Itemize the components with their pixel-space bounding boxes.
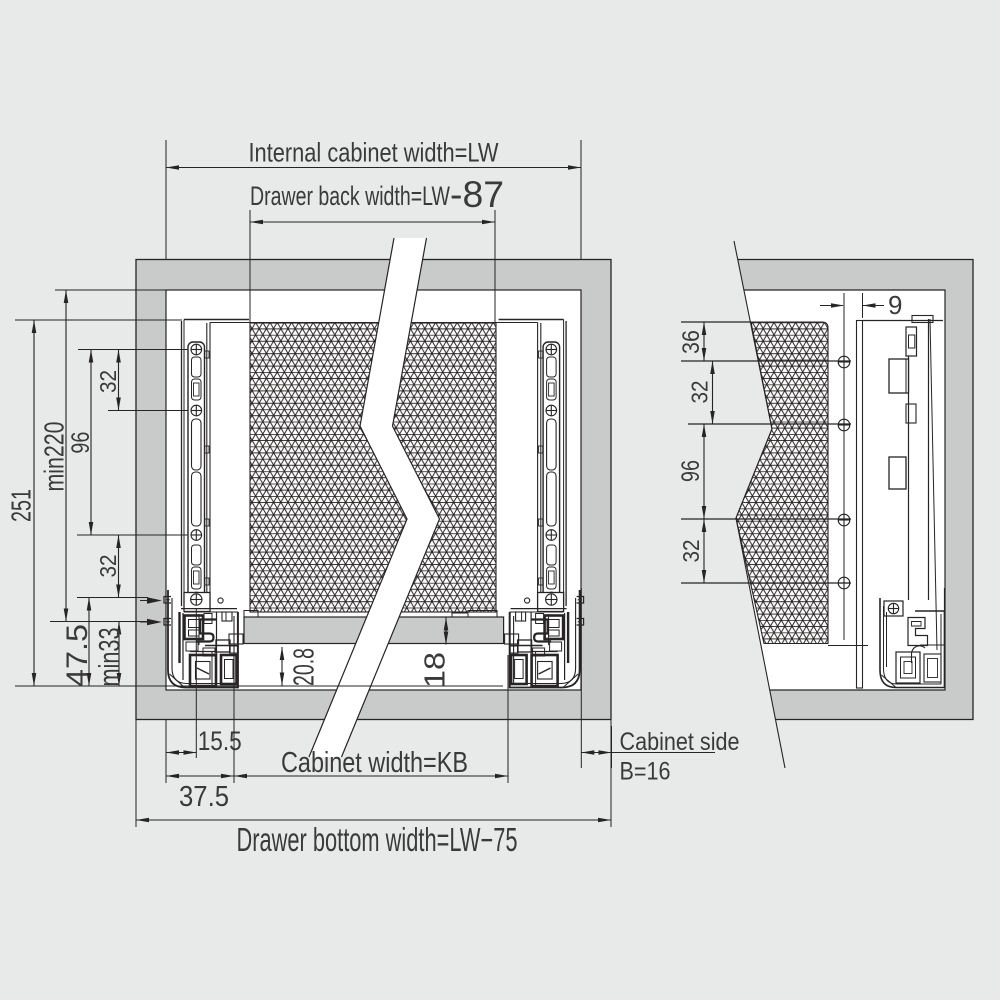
- svg-text:9: 9: [888, 290, 902, 320]
- svg-text:32: 32: [687, 381, 713, 404]
- svg-text:18: 18: [420, 652, 452, 688]
- svg-text:15.5: 15.5: [198, 726, 242, 756]
- svg-text:32: 32: [678, 540, 704, 563]
- svg-text:Internal cabinet width=LW: Internal cabinet width=LW: [249, 138, 499, 168]
- svg-text:96: 96: [67, 432, 95, 454]
- svg-text:32: 32: [95, 370, 121, 393]
- svg-text:251: 251: [6, 489, 37, 522]
- svg-text:Cabinet side: Cabinet side: [620, 728, 740, 756]
- svg-text:47.5: 47.5: [61, 624, 94, 687]
- svg-text:B=16: B=16: [620, 758, 671, 786]
- svg-text:Drawer bottom width=LW−75: Drawer bottom width=LW−75: [237, 821, 518, 858]
- svg-text:Cabinet width=KB: Cabinet width=KB: [281, 747, 468, 779]
- svg-text:min220: min220: [39, 422, 70, 492]
- svg-text:Drawer back width=LW: Drawer back width=LW: [250, 181, 450, 211]
- svg-text:32: 32: [95, 555, 121, 578]
- svg-text:20.8: 20.8: [289, 648, 321, 686]
- svg-text:-87: -87: [450, 174, 504, 215]
- svg-text:min33: min33: [94, 628, 127, 687]
- svg-text:36: 36: [678, 330, 705, 354]
- svg-text:96: 96: [677, 460, 705, 482]
- svg-text:37.5: 37.5: [179, 781, 229, 813]
